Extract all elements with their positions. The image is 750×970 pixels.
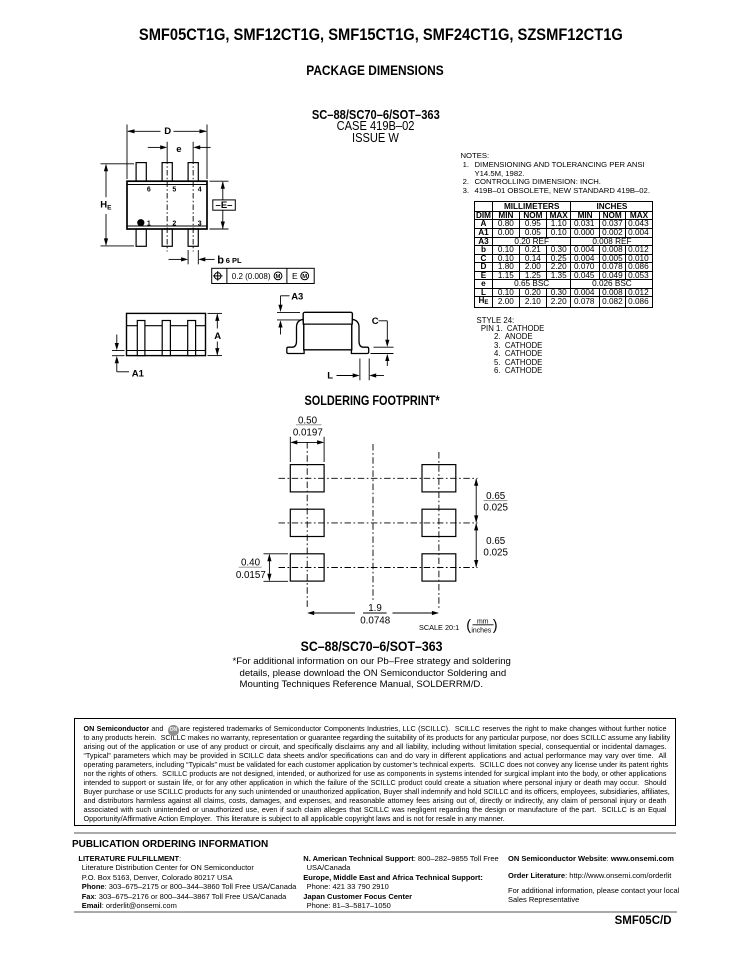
svg-text:C: C — [372, 316, 379, 327]
svg-text:HE: HE — [100, 200, 112, 212]
svg-text:A: A — [214, 331, 221, 342]
svg-text:E: E — [292, 271, 298, 281]
svg-text:0.65: 0.65 — [486, 536, 506, 547]
svg-text:L: L — [327, 370, 333, 381]
svg-text:3: 3 — [198, 220, 202, 227]
svg-text:–E–: –E– — [216, 200, 233, 211]
svg-text:6 PL: 6 PL — [226, 256, 242, 265]
svg-text:): ) — [493, 618, 498, 634]
svg-text:0.2 (0.008): 0.2 (0.008) — [232, 272, 271, 281]
svg-text:0.025: 0.025 — [483, 548, 508, 559]
svg-text:1.9: 1.9 — [368, 603, 382, 614]
svg-text:M: M — [276, 274, 281, 280]
svg-text:SCALE 20:1: SCALE 20:1 — [419, 623, 459, 632]
svg-text:0.025: 0.025 — [483, 502, 508, 513]
svg-text:0.0197: 0.0197 — [293, 427, 323, 438]
svg-text:1: 1 — [147, 220, 151, 227]
svg-text:A1: A1 — [132, 368, 145, 379]
svg-text:5: 5 — [172, 186, 176, 193]
svg-text:A3: A3 — [291, 292, 303, 303]
svg-text:0.0157: 0.0157 — [236, 570, 266, 581]
svg-text:0.65: 0.65 — [486, 491, 506, 502]
svg-text:4: 4 — [198, 186, 202, 193]
svg-text:2: 2 — [172, 220, 176, 227]
svg-text:inches: inches — [471, 627, 491, 634]
svg-text:0.0748: 0.0748 — [360, 615, 391, 626]
svg-text:6: 6 — [147, 186, 151, 193]
svg-text:b: b — [217, 255, 224, 267]
svg-text:D: D — [164, 126, 171, 137]
svg-text:0.40: 0.40 — [241, 558, 261, 569]
svg-text:e: e — [176, 144, 181, 155]
svg-text:M: M — [302, 274, 307, 280]
